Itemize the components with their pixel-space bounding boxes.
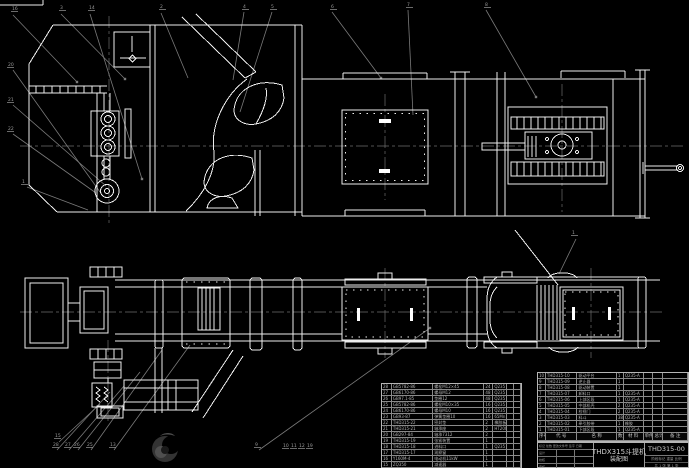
pull-rod <box>643 162 677 174</box>
callout-number: 13 <box>110 442 116 448</box>
callout-number: 16 <box>12 6 18 12</box>
centerlines <box>20 16 686 424</box>
revision-grid: 标记 处数 更改文件号 签字 日期 设计 校核 审核 <box>538 443 594 467</box>
drawing-title-cell: THDX315斗提机 装配图 <box>594 443 645 467</box>
bom-header-row: 序号代 号名 称数量材 料单件总计备 注 <box>538 433 688 441</box>
leader-arrow-dots <box>76 77 537 329</box>
callout-number: 1 <box>572 230 575 236</box>
callout-number: 20 <box>8 62 14 68</box>
callout-number: 5 <box>271 4 274 10</box>
callout-number: 28 <box>53 442 59 448</box>
elevation-view <box>0 0 684 285</box>
callout-number: 2 <box>160 4 163 10</box>
callout-number: 1 <box>22 179 25 185</box>
watermark-logo <box>152 433 180 462</box>
checker-label: 校核 <box>538 457 557 463</box>
callout-number: 15 <box>55 433 61 439</box>
callout-number: 27 <box>65 442 71 448</box>
callout-number: 6 <box>331 4 334 10</box>
sheet-count-row: 共 1 张 第 1 张 <box>645 463 688 468</box>
callout-number: 8 <box>485 2 488 8</box>
sheet-title: 装配图 <box>610 456 628 463</box>
callout-number: 21 <box>8 97 14 103</box>
parts-list-main: 10THD315-10驱动平台1Q235-A9THD315-09逆止器18THD… <box>537 372 689 442</box>
callout-number: 11 <box>291 443 297 449</box>
callout-number: 25 <box>87 442 93 448</box>
parts-list-hardware: 28GB5782-86螺栓M12×4524Q23527GB6170-86螺母M1… <box>381 383 522 468</box>
stage-weight-scale-row: 阶段标记 重量 比例 <box>645 456 688 463</box>
title-block: 标记 处数 更改文件号 签字 日期 设计 校核 审核 THDX315斗提机 装配… <box>537 442 689 468</box>
callout-number: 9 <box>255 442 258 448</box>
approver-label: 审核 <box>538 464 557 468</box>
callout-number: 3 <box>60 5 63 11</box>
callout-number: 26 <box>74 442 80 448</box>
callout-number: 10 <box>283 443 289 449</box>
product-title: THDX315斗提机 <box>592 448 646 456</box>
callout-number: 14 <box>89 5 95 11</box>
callout-number: 22 <box>8 126 14 132</box>
bom-row: 15ZQ350减速器1 <box>382 462 521 468</box>
callout-number: 12 <box>299 443 305 449</box>
rev-row-label: 标记 处数 更改文件号 签字 日期 <box>538 443 593 449</box>
balloon-callouts: 1631424567820212211528272625139101112191 <box>7 2 578 449</box>
callout-number: 4 <box>243 4 246 10</box>
designer-label: 设计 <box>538 450 557 456</box>
callout-number: 7 <box>407 2 410 8</box>
callout-number: 19 <box>307 443 313 449</box>
drawing-number-cell: THD315-00 阶段标记 重量 比例 共 1 张 第 1 张 <box>645 443 688 467</box>
frame-corner <box>0 0 43 5</box>
drawing-number: THD315-00 <box>645 443 688 456</box>
cad-drawing-page: 1631424567820212211528272625139101112191… <box>0 0 689 468</box>
